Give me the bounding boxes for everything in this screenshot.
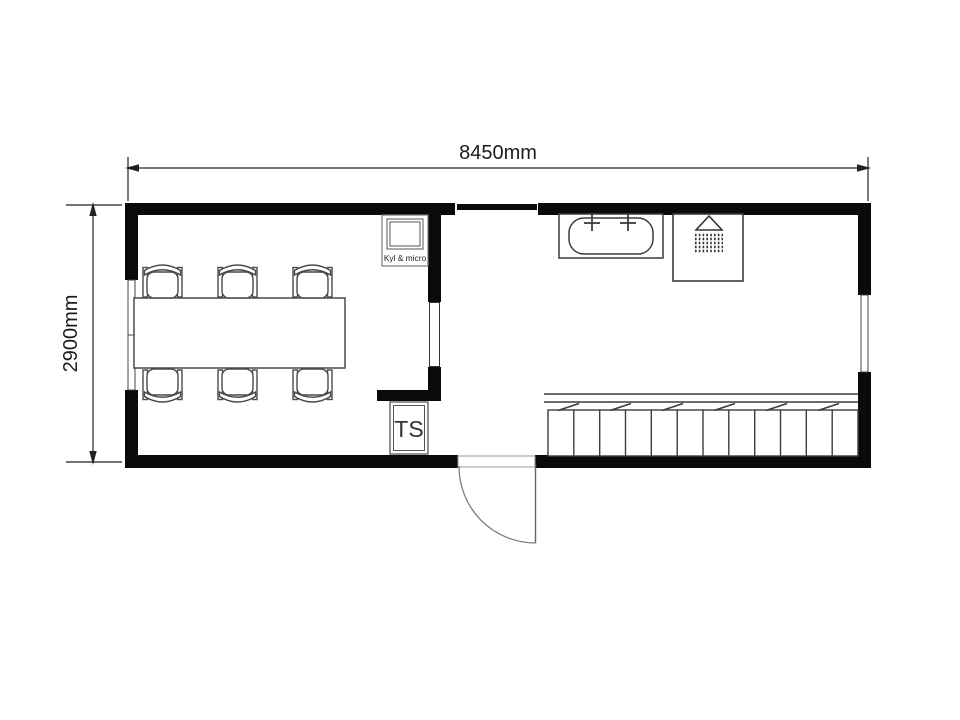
wall-right-lower	[858, 372, 871, 468]
floor-plan-drawing: 8450mm 2900mm	[0, 0, 960, 720]
interior-wall-upper	[428, 203, 441, 302]
arrow-right-icon	[857, 164, 871, 171]
chair-bottom-1	[143, 369, 182, 402]
wall-left-lower	[125, 390, 138, 468]
toilet-label: TS	[394, 416, 423, 442]
wall-top-left-segment	[125, 203, 455, 215]
arrow-up-icon	[89, 202, 96, 216]
dining-table	[134, 298, 345, 368]
chair-top-3	[293, 265, 332, 298]
floor-plan-page: 8450mm 2900mm	[0, 0, 960, 720]
window-right	[859, 295, 870, 372]
wall-bottom-right-segment	[535, 455, 871, 468]
entry-door	[458, 456, 536, 543]
toilet-unit: TS	[390, 402, 428, 454]
tub-basin	[569, 218, 653, 254]
door-swing-arc	[459, 466, 536, 543]
wall-left-upper	[125, 203, 138, 280]
wall-right-upper	[858, 203, 871, 295]
width-dimension-label: 8450mm	[459, 142, 537, 164]
fridge-microwave-unit: Kyl & micro	[382, 215, 428, 266]
height-dimension-label: 2900mm	[60, 295, 82, 373]
chair-bottom-2	[218, 369, 257, 402]
left-dimension: 2900mm	[60, 202, 122, 465]
shower	[673, 214, 743, 281]
wall-top-right-segment	[538, 203, 871, 215]
locker-bench	[544, 394, 858, 456]
top-dimension: 8450mm	[125, 142, 871, 201]
window-top	[457, 204, 537, 210]
chair-top-2	[218, 265, 257, 298]
chair-top-1	[143, 265, 182, 298]
meeting-room: Kyl & micro TS	[134, 215, 428, 454]
wall-bottom-left-segment	[125, 455, 458, 468]
bathtub	[559, 214, 663, 258]
arrow-down-icon	[89, 451, 96, 465]
door-threshold	[458, 456, 535, 467]
arrow-left-icon	[125, 164, 139, 171]
chair-bottom-3	[293, 369, 332, 402]
fridge-microwave-label: Kyl & micro	[384, 253, 427, 263]
interior-wall-ts	[377, 390, 441, 401]
interior-window	[430, 303, 440, 367]
bathroom-hall	[458, 214, 858, 543]
